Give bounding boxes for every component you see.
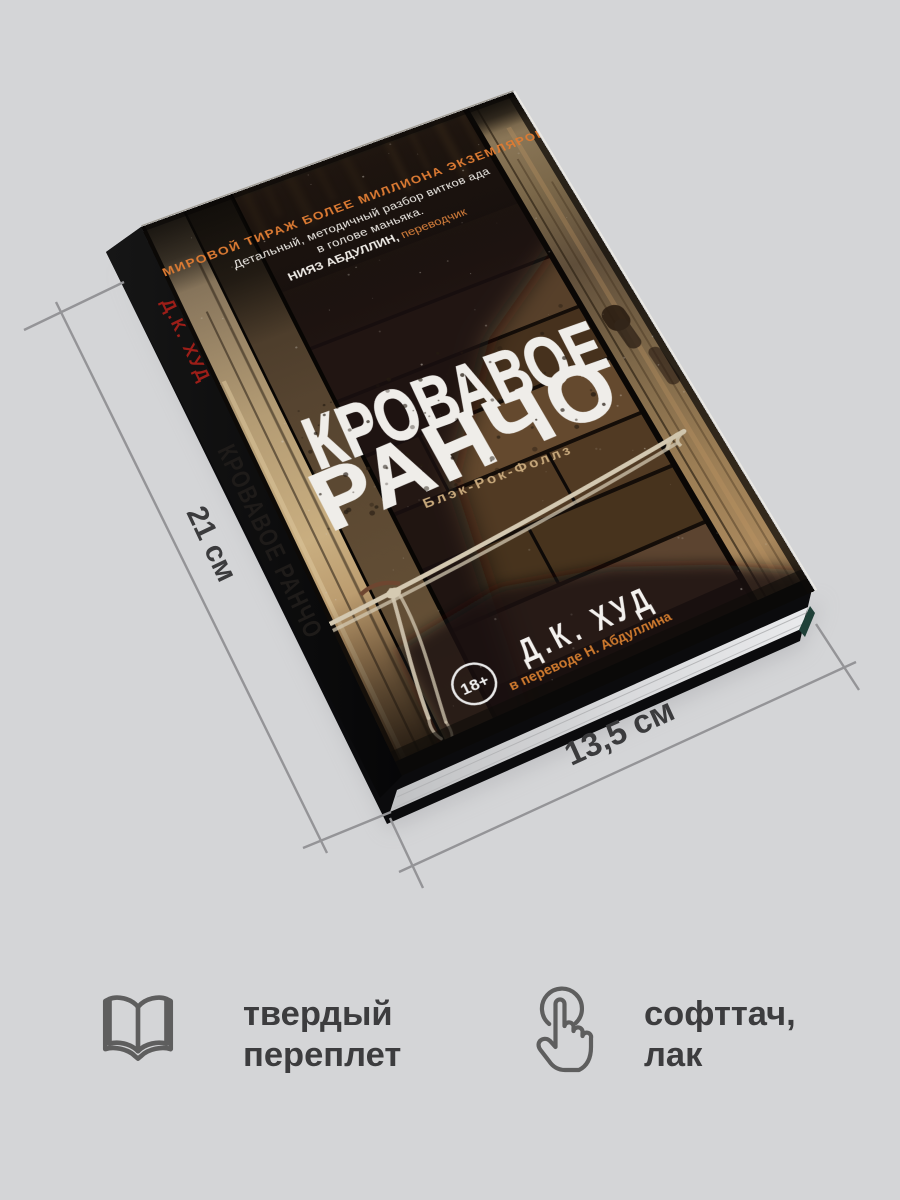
- svg-text:18+: 18+: [458, 671, 492, 698]
